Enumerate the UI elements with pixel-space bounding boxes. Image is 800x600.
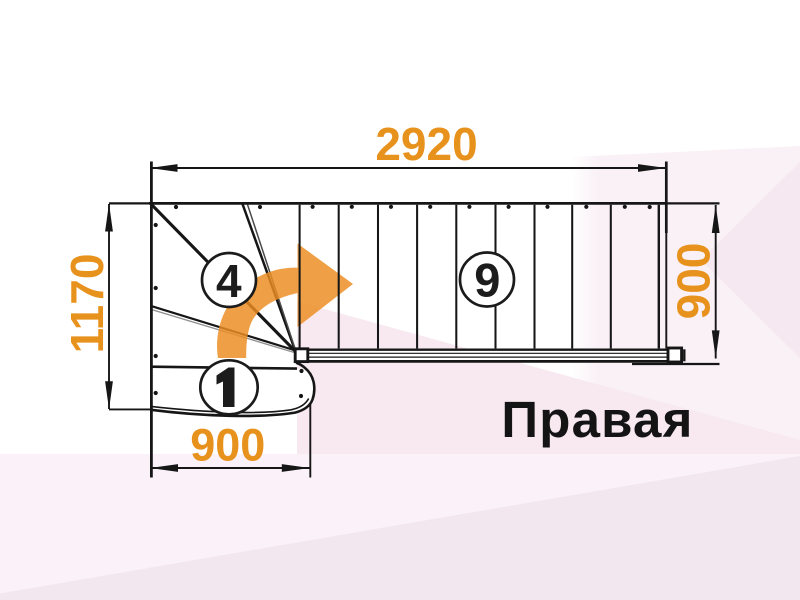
svg-text:900: 900: [190, 420, 265, 471]
svg-text:1170: 1170: [61, 254, 113, 354]
svg-text:900: 900: [668, 243, 720, 320]
svg-text:4: 4: [216, 255, 242, 307]
svg-text:9: 9: [474, 254, 500, 307]
svg-text:2920: 2920: [375, 118, 477, 170]
svg-text:Правая: Правая: [501, 391, 693, 448]
